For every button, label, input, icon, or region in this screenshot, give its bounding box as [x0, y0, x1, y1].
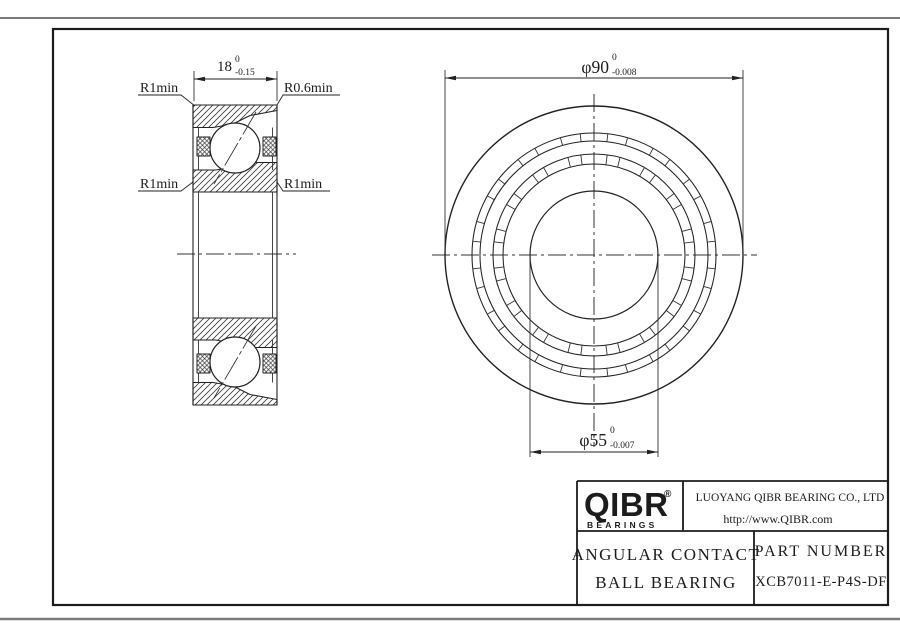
- leader-top-left: [138, 95, 195, 106]
- od-dim-value: φ90: [581, 57, 609, 77]
- arrow-left-icon: [445, 76, 456, 80]
- logo-subtext: BEARINGS: [587, 520, 657, 530]
- bore-dim-value: φ55: [579, 430, 607, 450]
- drawing-sheet: 18 0 -0.15 R1min R0.6min R1min R1min: [0, 0, 900, 636]
- arrow-right-icon: [266, 77, 277, 81]
- logo-wordmark: QIBR: [584, 486, 669, 523]
- label-r1min-top-left: R1min: [140, 81, 178, 96]
- company-website: http://www.QIBR.com: [723, 512, 833, 526]
- width-dim-value: 18: [217, 59, 232, 75]
- product-type-line1: ANGULAR CONTACT: [572, 545, 761, 564]
- width-dim-tol-upper: 0: [235, 55, 240, 65]
- od-dim-tol-lower: -0.008: [612, 68, 637, 78]
- arrow-left-icon: [194, 77, 205, 81]
- leader-top-right: [277, 95, 340, 105]
- bore-dim-tol-lower: -0.007: [610, 441, 635, 451]
- product-type-line2: BALL BEARING: [595, 573, 737, 592]
- arrow-right-icon: [732, 76, 743, 80]
- bearing-drawing-svg: 18 0 -0.15 R1min R0.6min R1min R1min: [0, 0, 900, 636]
- company-name: LUOYANG QIBR BEARING CO., LTD: [696, 492, 885, 504]
- od-dim-tol-upper: 0: [612, 53, 617, 63]
- brand-logo: QIBR ® BEARINGS: [584, 486, 672, 530]
- bore-dim-tol-upper: 0: [610, 426, 615, 436]
- arrow-left-icon: [530, 450, 541, 454]
- part-number-label: PART NUMBER: [755, 543, 888, 560]
- label-r06min-top-right: R0.6min: [284, 81, 333, 96]
- registered-trademark-icon: ®: [664, 489, 672, 500]
- section-view: 18 0 -0.15 R1min R0.6min R1min R1min: [138, 55, 340, 405]
- label-r1min-mid-right: R1min: [284, 177, 322, 192]
- arrow-right-icon: [647, 450, 658, 454]
- width-dim-tol-lower: -0.15: [235, 68, 255, 78]
- width-dimension: 18 0 -0.15: [194, 55, 277, 101]
- front-view: φ90 0 -0.008 φ55 0 -0.007: [432, 53, 757, 457]
- part-number-value: XCB7011-E-P4S-DF: [755, 574, 887, 590]
- title-block: QIBR ® BEARINGS LUOYANG QIBR BEARING CO.…: [572, 481, 888, 605]
- label-r1min-mid-left: R1min: [140, 177, 178, 192]
